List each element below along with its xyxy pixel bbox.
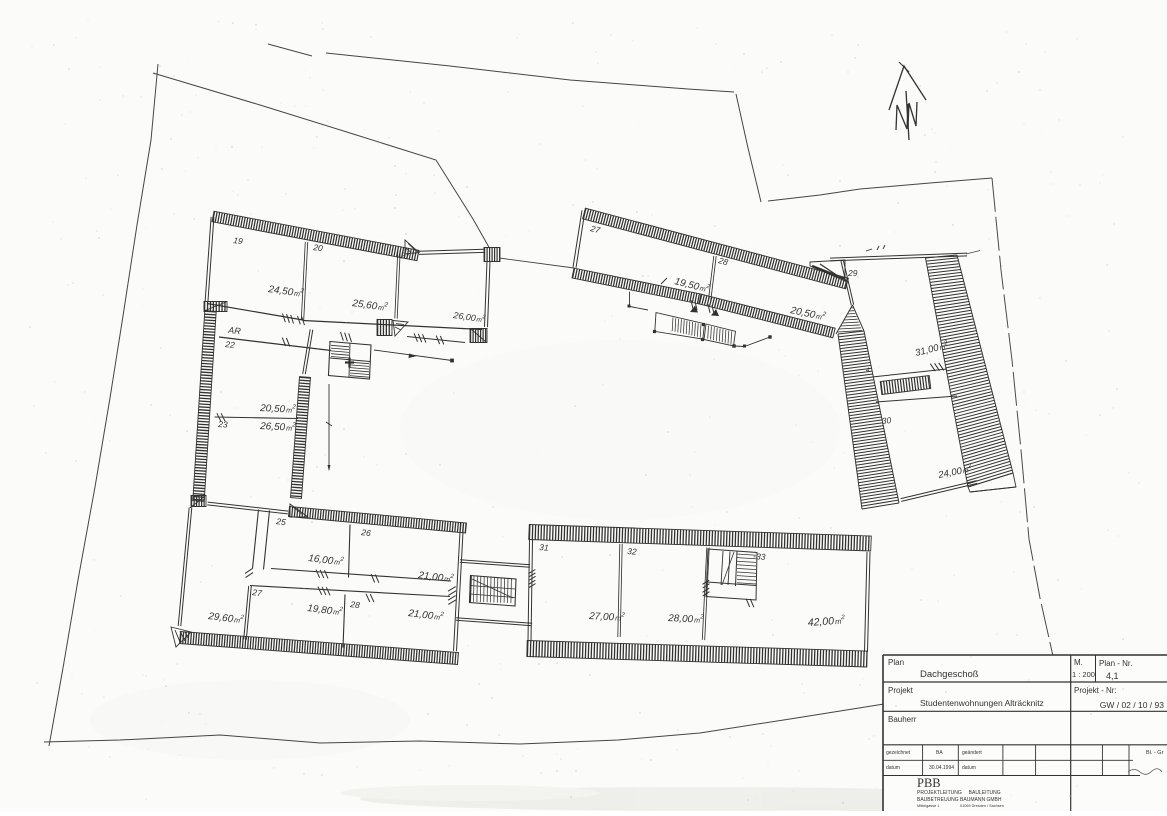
svg-text:27: 27 <box>251 587 263 598</box>
svg-text:Mittelgasse 1: Mittelgasse 1 <box>917 804 939 808</box>
svg-text:BA: BA <box>936 750 943 756</box>
svg-text:Dachgeschoß: Dachgeschoß <box>920 669 979 680</box>
svg-text:PBB: PBB <box>917 776 941 790</box>
svg-text:Projekt - Nr:: Projekt - Nr: <box>1074 686 1117 695</box>
svg-text:M.: M. <box>1074 658 1083 667</box>
svg-text:25: 25 <box>275 516 287 527</box>
svg-text:-33: -33 <box>753 551 766 562</box>
svg-text:gezeichnet: gezeichnet <box>886 750 911 756</box>
svg-text:geändert: geändert <box>962 750 982 756</box>
svg-text:23: 23 <box>217 419 228 430</box>
svg-text:Plan - Nr.: Plan - Nr. <box>1099 659 1132 668</box>
svg-text:30: 30 <box>881 415 892 426</box>
svg-text:31: 31 <box>539 542 549 553</box>
svg-text:Studentenwohnungen Alträcknitz: Studentenwohnungen Alträcknitz <box>920 698 1044 708</box>
svg-text:28: 28 <box>349 599 361 610</box>
svg-text:GW / 02 / 10 / 93: GW / 02 / 10 / 93 <box>1100 700 1165 710</box>
svg-text:21: 21 <box>399 250 411 261</box>
svg-text:32: 32 <box>627 546 637 557</box>
svg-text:Bauherr: Bauherr <box>888 715 917 724</box>
svg-text:30.04.1994: 30.04.1994 <box>929 765 954 771</box>
svg-text:Projekt: Projekt <box>888 686 914 695</box>
svg-text:datum: datum <box>962 765 976 771</box>
svg-text:Plan: Plan <box>888 658 904 667</box>
svg-text:BAUBETREUUNG BAUMANN GMBH: BAUBETREUUNG BAUMANN GMBH <box>917 797 1002 803</box>
svg-text:PROJEKTLEITUNG BAULEITUNG: PROJEKTLEITUNG BAULEITUNG <box>917 790 1001 796</box>
svg-text:29: 29 <box>847 268 858 278</box>
svg-text:22: 22 <box>224 339 236 350</box>
svg-text:1 : 200: 1 : 200 <box>1072 670 1095 679</box>
svg-text:26: 26 <box>360 527 372 538</box>
svg-text:Bl. - Gr: Bl. - Gr <box>1146 750 1164 756</box>
svg-text:01069 Dresden / Sachsen: 01069 Dresden / Sachsen <box>960 804 1004 808</box>
svg-text:AR: AR <box>227 325 242 336</box>
svg-text:datum: datum <box>886 765 900 771</box>
svg-text:4,1: 4,1 <box>1106 671 1119 681</box>
svg-text:20: 20 <box>312 242 324 253</box>
svg-text:19: 19 <box>233 235 244 246</box>
